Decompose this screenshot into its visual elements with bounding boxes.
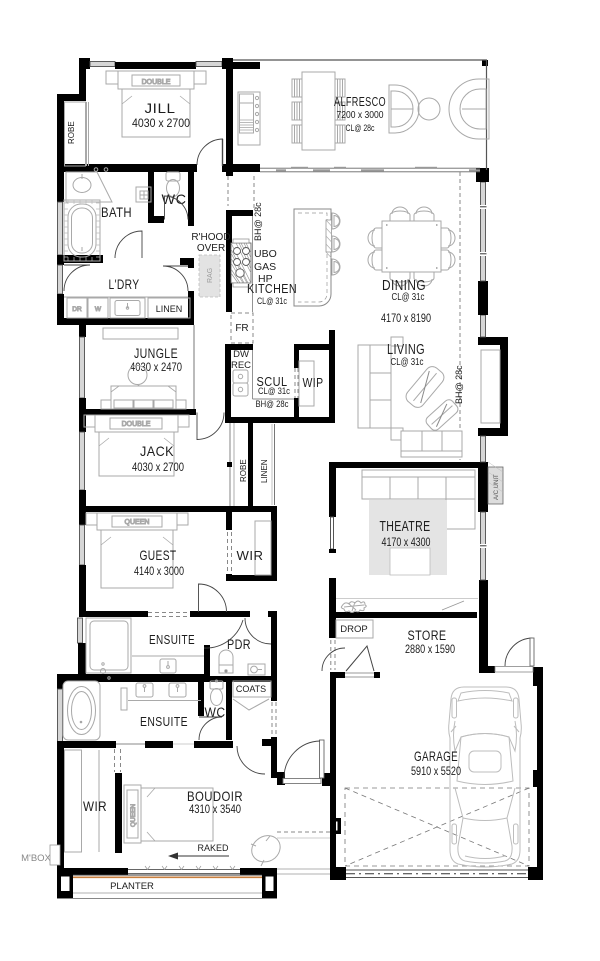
svg-text:BH@ 28c: BH@ 28c: [253, 202, 263, 241]
svg-text:CL@ 28c: CL@ 28c: [346, 123, 375, 133]
svg-text:7200 x 3000: 7200 x 3000: [337, 109, 384, 121]
svg-text:DOUBLE: DOUBLE: [122, 421, 151, 428]
svg-text:4030 x 2470: 4030 x 2470: [130, 362, 182, 374]
svg-text:CL@ 31c: CL@ 31c: [257, 296, 287, 306]
svg-text:DW: DW: [233, 349, 249, 360]
svg-text:PLANTER: PLANTER: [110, 881, 154, 892]
svg-text:LINEN: LINEN: [260, 459, 269, 483]
svg-text:GARAGE: GARAGE: [414, 748, 458, 764]
svg-text:BATH: BATH: [101, 204, 132, 220]
svg-text:CL@ 31c: CL@ 31c: [391, 357, 424, 368]
svg-text:4310 x 3540: 4310 x 3540: [189, 804, 241, 816]
svg-text:4030 x 2700: 4030 x 2700: [132, 462, 184, 474]
svg-text:R'HOOD: R'HOOD: [191, 232, 230, 243]
svg-text:JUNGLE: JUNGLE: [134, 345, 178, 361]
svg-text:DR: DR: [72, 306, 82, 313]
svg-text:GUEST: GUEST: [140, 547, 177, 563]
svg-text:FR: FR: [235, 323, 248, 334]
svg-text:THEATRE: THEATRE: [380, 519, 431, 535]
svg-text:WIP: WIP: [303, 375, 324, 390]
svg-text:REC: REC: [231, 360, 251, 371]
svg-text:A/C UNIT: A/C UNIT: [494, 474, 500, 500]
svg-text:ROBE: ROBE: [67, 121, 76, 144]
svg-text:4030 x 2700: 4030 x 2700: [132, 118, 190, 130]
svg-text:JACK: JACK: [140, 443, 174, 459]
svg-text:QUEEN: QUEEN: [130, 804, 137, 827]
svg-text:QUEEN: QUEEN: [125, 519, 150, 526]
svg-text:JILL: JILL: [145, 100, 176, 116]
svg-text:BOUDOIR: BOUDOIR: [187, 788, 243, 804]
svg-text:BH@ 28c: BH@ 28c: [454, 365, 464, 404]
svg-text:4170 x 4300: 4170 x 4300: [382, 537, 431, 549]
svg-text:W: W: [95, 306, 102, 313]
svg-text:RAKED: RAKED: [197, 843, 229, 853]
svg-text:GAS: GAS: [254, 261, 276, 273]
svg-text:L'DRY: L'DRY: [109, 276, 140, 292]
svg-text:ALFRESCO: ALFRESCO: [334, 94, 386, 109]
svg-text:DROP: DROP: [340, 624, 367, 635]
svg-text:KITCHEN: KITCHEN: [247, 281, 297, 296]
svg-text:WIR: WIR: [237, 548, 264, 563]
svg-text:LINEN: LINEN: [156, 304, 183, 314]
svg-text:4140 x 3000: 4140 x 3000: [134, 566, 184, 578]
svg-text:WIR: WIR: [83, 799, 107, 814]
svg-text:UBO: UBO: [254, 248, 277, 260]
svg-text:CL@ 31c: CL@ 31c: [392, 292, 425, 303]
svg-text:2880 x 1590: 2880 x 1590: [405, 644, 455, 656]
svg-text:RAG: RAG: [207, 268, 214, 283]
svg-text:BH@ 28c: BH@ 28c: [256, 399, 289, 409]
svg-text:ENSUITE: ENSUITE: [140, 715, 188, 729]
svg-text:ENSUITE: ENSUITE: [149, 633, 195, 647]
svg-text:STORE: STORE: [408, 628, 447, 643]
svg-text:M'BOX: M'BOX: [21, 853, 51, 864]
svg-text:LIVING: LIVING: [387, 342, 425, 358]
svg-text:OVER: OVER: [197, 243, 225, 254]
svg-text:DOUBLE: DOUBLE: [142, 79, 171, 86]
svg-text:PDR: PDR: [227, 637, 251, 652]
svg-text:COATS: COATS: [236, 684, 266, 694]
svg-text:4170 x 8190: 4170 x 8190: [381, 313, 431, 325]
svg-text:CL@ 31c: CL@ 31c: [258, 386, 290, 396]
svg-text:5910 x 5520: 5910 x 5520: [411, 766, 461, 778]
svg-text:ROBE: ROBE: [239, 459, 248, 482]
